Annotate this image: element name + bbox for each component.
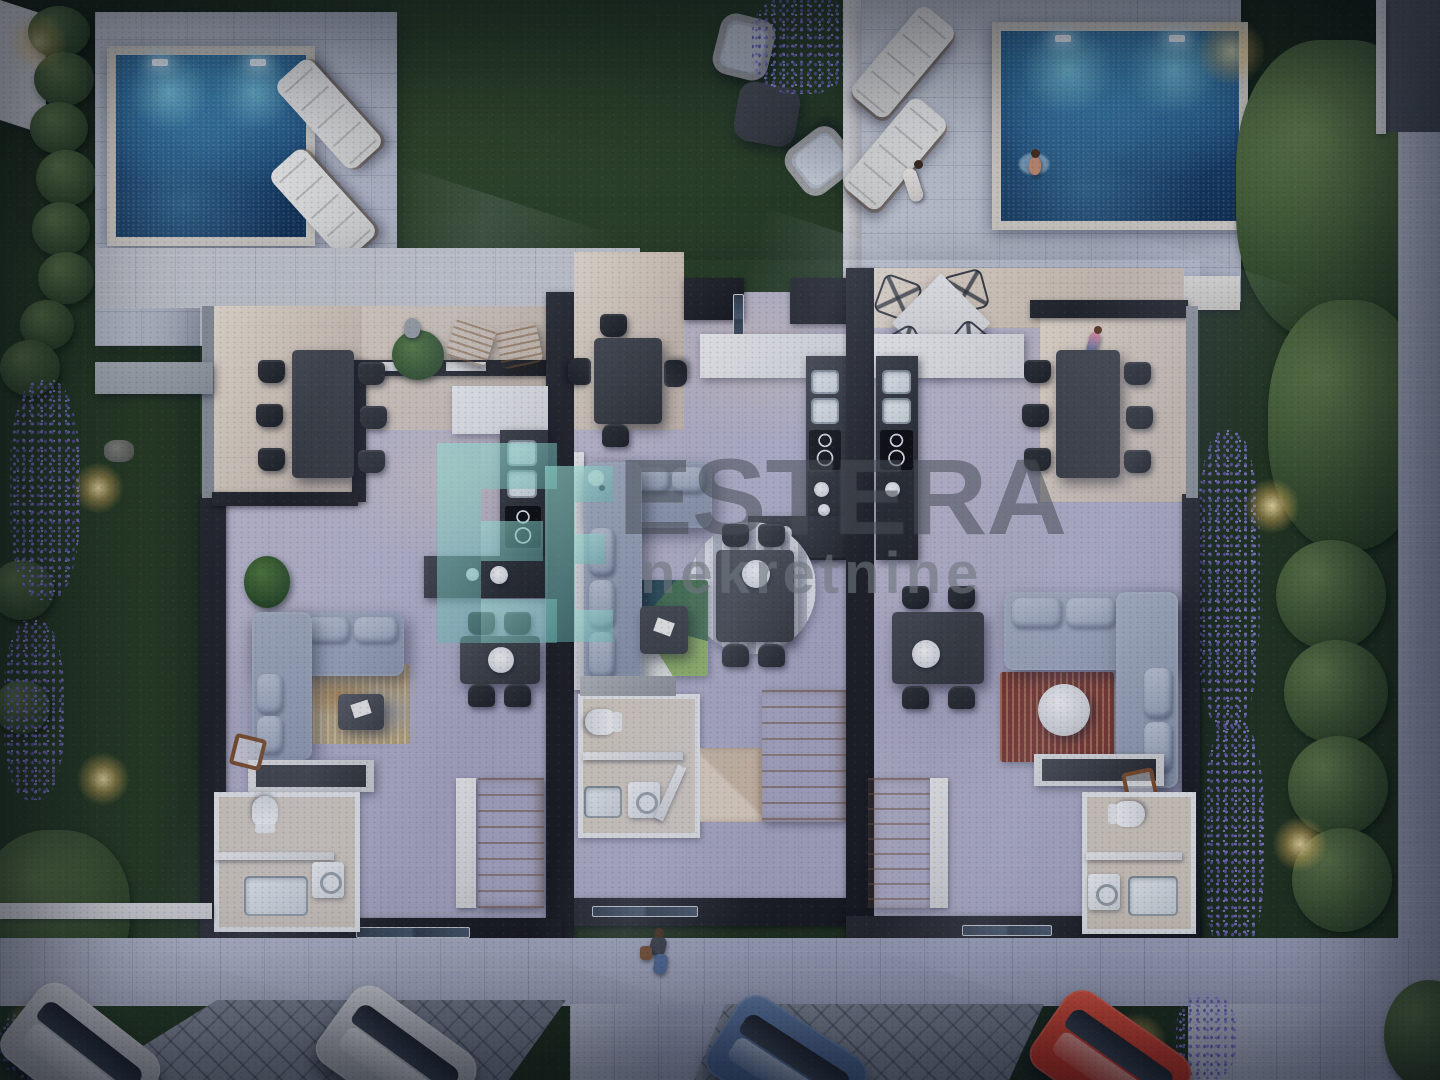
patio-chair xyxy=(568,358,591,385)
bathroom-vanity-top xyxy=(580,676,676,696)
sofa-cushion xyxy=(1144,668,1172,718)
right-top-wall xyxy=(1030,300,1188,318)
bathroom-partition xyxy=(1086,852,1182,860)
pool-light xyxy=(1169,35,1185,42)
middle-patio-table xyxy=(594,338,662,424)
bathroom-vanity-sink xyxy=(1128,876,1178,916)
table-plate xyxy=(488,647,514,673)
wooden-deck-chair xyxy=(494,322,543,370)
garden-rock xyxy=(104,440,134,462)
toilet xyxy=(1113,801,1145,827)
left-terrace-low-wall xyxy=(202,306,214,498)
hedge-puff-right xyxy=(1276,540,1386,650)
hedge-bush xyxy=(30,102,88,154)
child-head xyxy=(1094,326,1102,334)
hedge-bush xyxy=(32,202,90,256)
lavender-border-right xyxy=(1196,430,1260,730)
swimmer-body xyxy=(1029,157,1041,175)
walker-bag xyxy=(640,946,652,960)
outdoor-chair xyxy=(258,448,285,471)
pool-light xyxy=(152,59,168,66)
washing-machine xyxy=(312,862,344,898)
aerial-dusk-render: ESTERA nekretnine xyxy=(0,0,1440,1080)
logo-e-bar xyxy=(481,521,543,561)
stair-wall xyxy=(456,778,476,908)
logo-e-bar xyxy=(545,466,575,642)
hedge-bush xyxy=(38,252,94,304)
potted-plant xyxy=(392,330,444,380)
dining-chair xyxy=(948,686,975,709)
dining-chair xyxy=(902,686,929,709)
logo-e-bar xyxy=(437,443,481,643)
right-entrance-sliding-door xyxy=(962,925,1052,936)
right-dining-table xyxy=(892,612,984,684)
middle-staircase xyxy=(762,690,846,822)
right-terrace-low-wall xyxy=(1186,306,1198,498)
toilet xyxy=(252,796,278,828)
left-entrance-sliding-door xyxy=(356,927,470,938)
sofa-cushion xyxy=(1066,598,1116,628)
pool-light xyxy=(250,59,266,66)
magazine xyxy=(653,617,675,636)
left-outdoor-dining-table xyxy=(292,350,354,478)
left-dining-table xyxy=(460,636,540,684)
planter-wall-left xyxy=(95,362,213,394)
left-staircase xyxy=(478,778,544,908)
lavender-bush-lawn xyxy=(752,0,852,94)
middle-entrance-sliding-door xyxy=(592,906,698,917)
potted-plant xyxy=(244,556,290,608)
outdoor-chair xyxy=(1126,406,1153,429)
left-tv-sideboard xyxy=(248,760,374,792)
sofa-cushion xyxy=(1012,598,1062,628)
dishes xyxy=(490,566,508,584)
garden-light xyxy=(8,12,68,72)
front-walkway xyxy=(0,938,1440,1006)
patio-chair xyxy=(600,314,627,337)
street-curb xyxy=(1376,0,1386,134)
dining-chair xyxy=(722,644,749,667)
magazine xyxy=(350,700,371,719)
outdoor-chair xyxy=(1124,450,1151,473)
table-plate xyxy=(912,640,940,668)
bathroom-partition xyxy=(214,852,334,860)
bathroom-partition xyxy=(583,752,683,760)
watermark-brand: ESTERA xyxy=(618,444,1066,552)
hedge-bush xyxy=(36,150,96,206)
kitchen-sink xyxy=(882,398,911,424)
logo-e-bar xyxy=(575,534,605,564)
dining-chair xyxy=(758,644,785,667)
sofa-cushion xyxy=(354,617,398,643)
dining-chair xyxy=(468,684,495,707)
woman-head xyxy=(914,160,923,169)
kitchen-sink xyxy=(882,370,911,394)
outdoor-chair xyxy=(1024,360,1051,383)
sofa-cushion xyxy=(257,674,283,714)
garden-light xyxy=(1272,816,1328,872)
garden-light xyxy=(1196,16,1266,86)
outdoor-chair xyxy=(1124,362,1151,385)
lavender-border-right xyxy=(1204,720,1264,960)
lavender-border-left xyxy=(10,380,80,600)
stair-wall xyxy=(930,778,948,908)
washing-machine xyxy=(1088,874,1120,910)
left-terrace-divider-wall xyxy=(212,492,358,506)
stair-winders xyxy=(700,748,762,822)
hedge-puff-right xyxy=(1284,640,1388,744)
lavender-border-left xyxy=(4,620,64,800)
street-corner xyxy=(1384,0,1440,132)
bathroom-basin xyxy=(584,786,622,818)
middle-coffee-table xyxy=(640,606,688,654)
side-path-right xyxy=(1398,128,1440,974)
front-boundary-wall xyxy=(0,903,212,919)
swimmer-head xyxy=(1031,149,1040,158)
left-kitchen-island xyxy=(452,386,548,434)
garden-light xyxy=(72,462,124,514)
dining-chair xyxy=(504,684,531,707)
outdoor-chair xyxy=(358,362,385,385)
seated-figure xyxy=(404,318,420,338)
walker-head xyxy=(654,928,664,938)
toilet xyxy=(585,709,617,735)
kitchen-sink xyxy=(811,370,839,394)
outdoor-chair xyxy=(256,404,283,427)
bathroom-vanity-sink xyxy=(244,876,308,916)
garden-light xyxy=(1244,478,1300,534)
logo-e-bar xyxy=(575,610,613,642)
outdoor-chair xyxy=(258,360,285,383)
outdoor-chair xyxy=(1022,404,1049,427)
outdoor-chair xyxy=(358,450,385,473)
watermark-tagline: nekretnine xyxy=(640,545,983,603)
sofa-cushion xyxy=(306,617,350,643)
washing-machine xyxy=(628,782,660,818)
kitchen-sink xyxy=(811,398,839,424)
logo-e-bar xyxy=(575,466,613,502)
pool-light xyxy=(1055,35,1071,42)
garden-light xyxy=(76,752,130,806)
outdoor-chair xyxy=(360,406,387,429)
right-round-coffee-table xyxy=(1038,684,1090,736)
boundary-wall-centre xyxy=(843,0,861,300)
right-staircase xyxy=(868,778,930,908)
left-coffee-table xyxy=(338,694,384,730)
patio-chair xyxy=(664,360,687,387)
